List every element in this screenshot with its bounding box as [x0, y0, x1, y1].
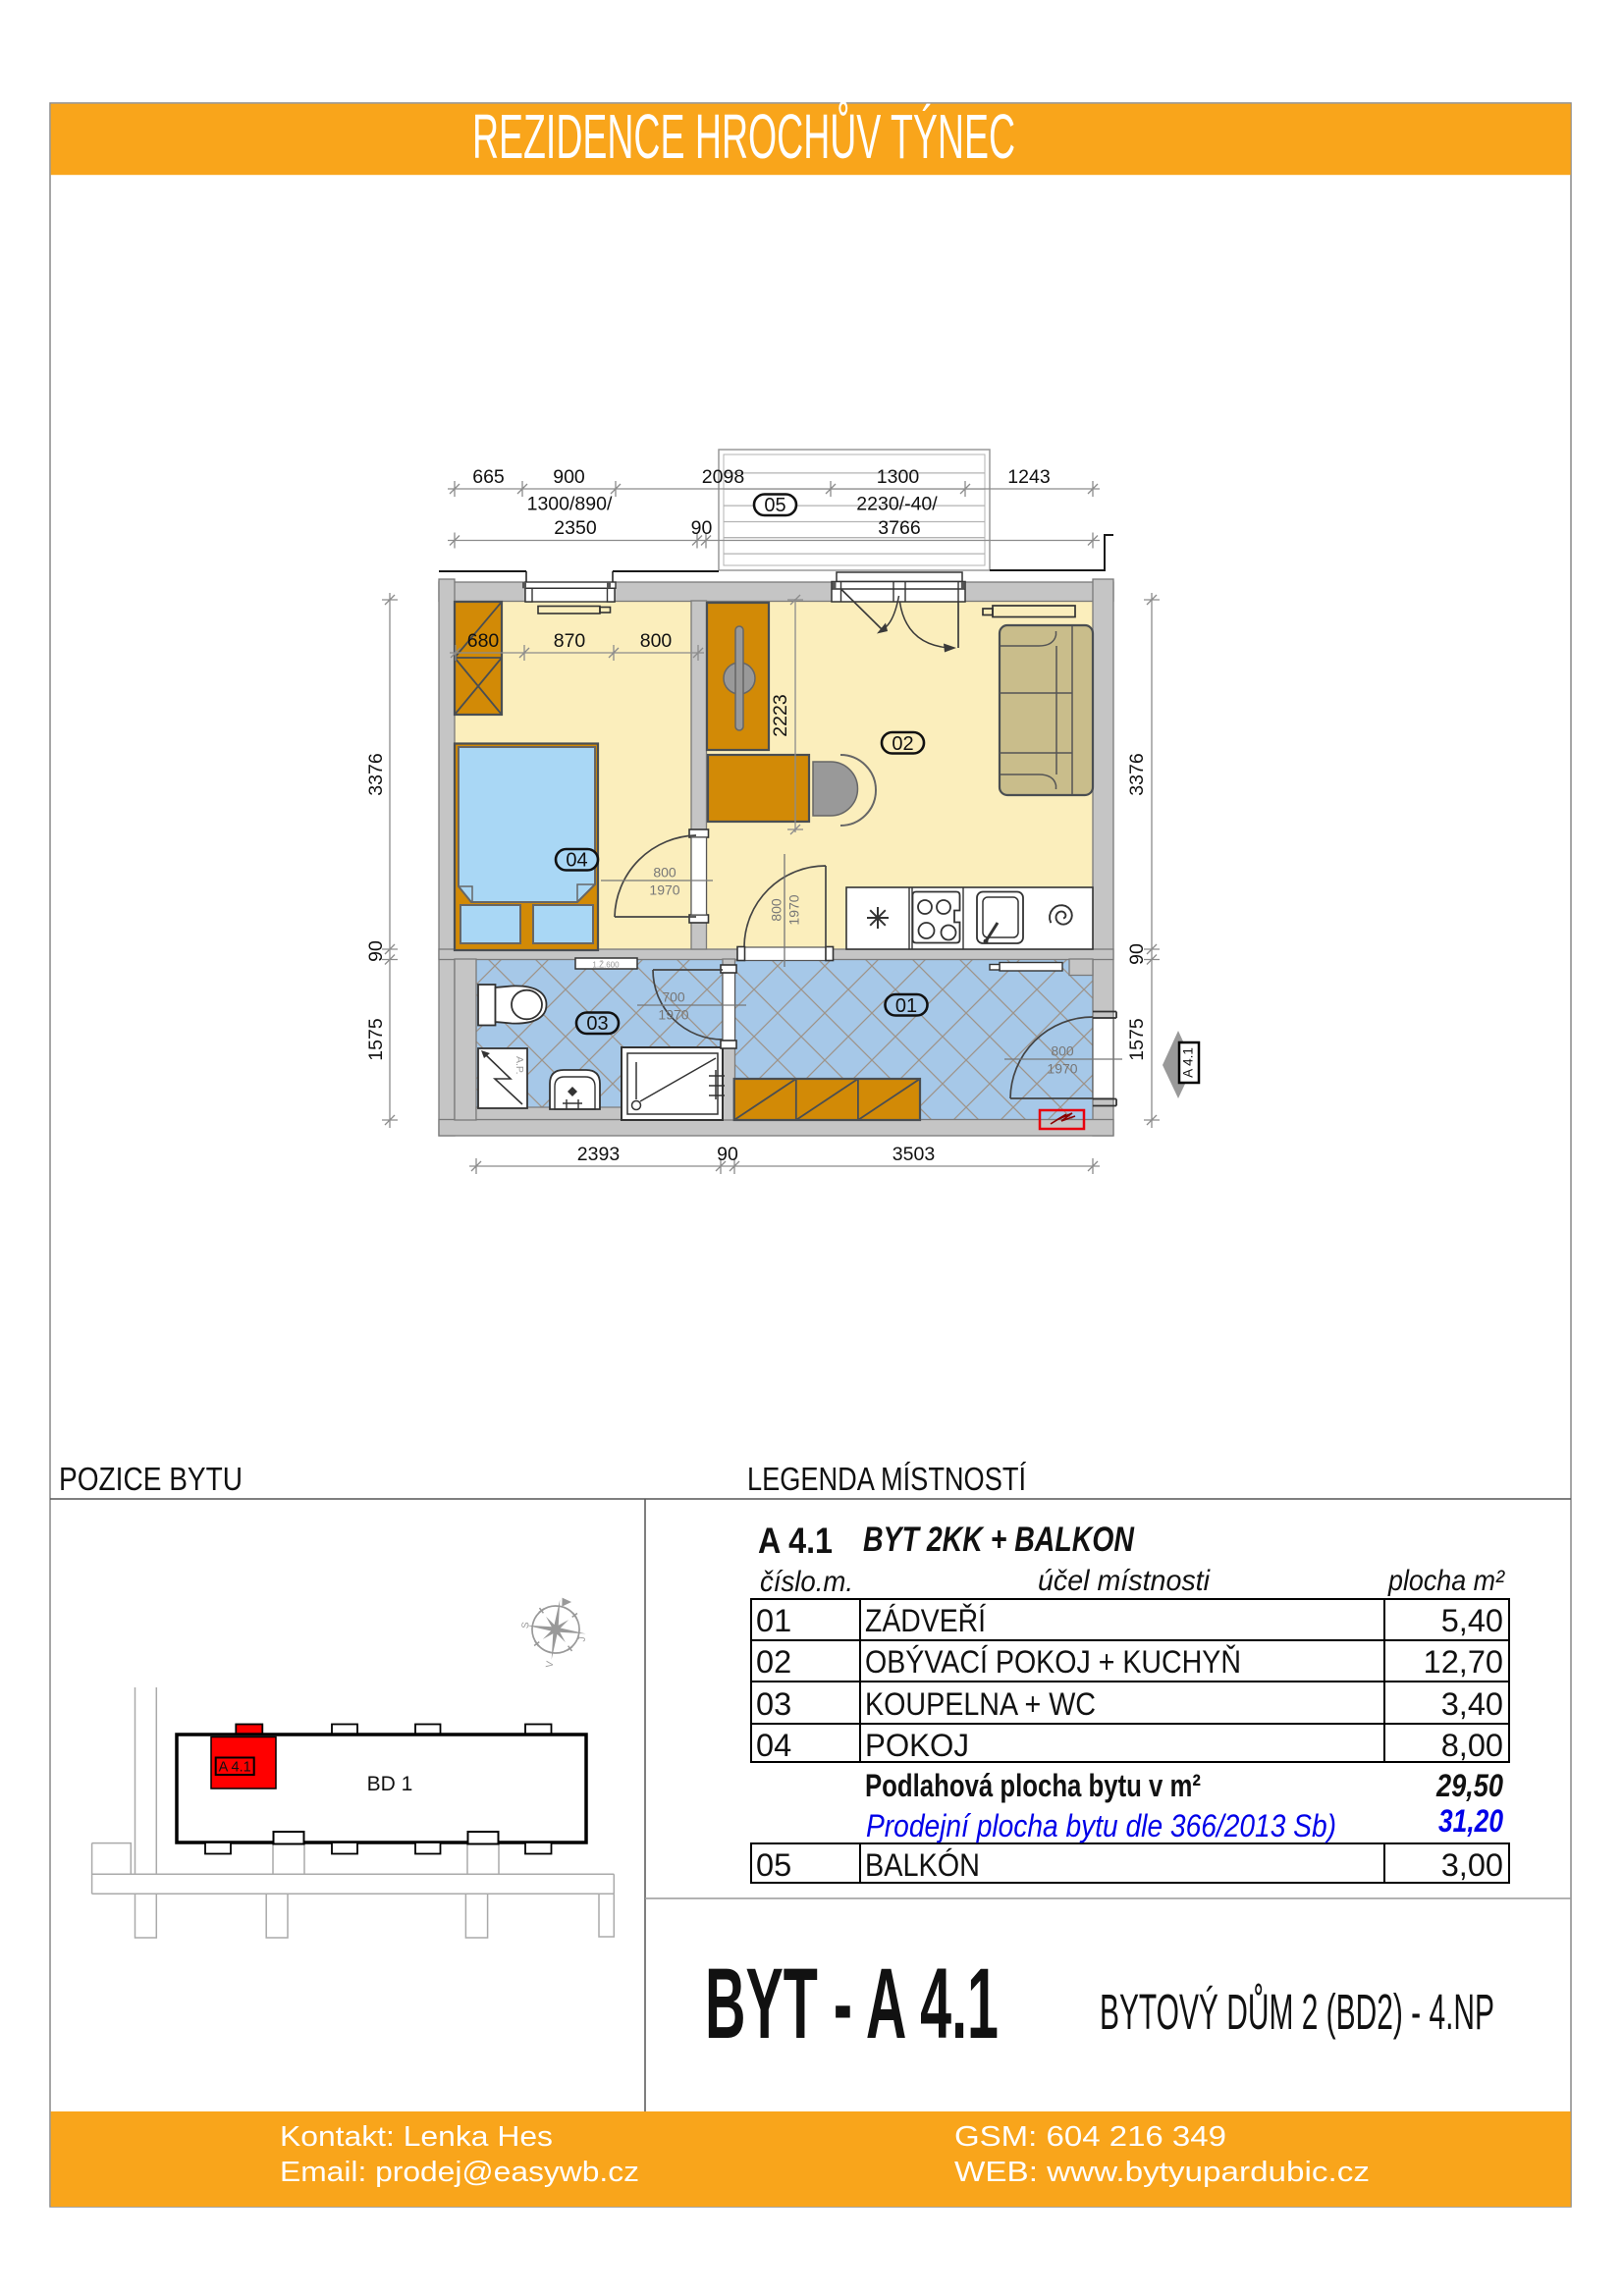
svg-text:90: 90: [717, 1144, 738, 1165]
svg-text:2223: 2223: [770, 694, 791, 736]
svg-text:Prodejní plocha bytu dle 366/2: Prodejní plocha bytu dle 366/2013 Sb): [866, 1808, 1336, 1843]
svg-text:WEB: www.bytyupardubic.cz: WEB: www.bytyupardubic.cz: [954, 2157, 1370, 2188]
svg-text:04: 04: [756, 1728, 791, 1763]
svg-text:680: 680: [467, 630, 500, 652]
svg-text:800: 800: [640, 630, 673, 652]
svg-text:12,70: 12,70: [1424, 1644, 1503, 1680]
svg-text:90: 90: [365, 940, 387, 962]
svg-text:02: 02: [756, 1644, 791, 1680]
svg-text:900: 900: [553, 466, 585, 488]
svg-text:2350: 2350: [554, 517, 597, 539]
svg-text:1300: 1300: [877, 466, 920, 488]
svg-text:03: 03: [756, 1686, 791, 1722]
svg-text:ZÁDVEŘÍ: ZÁDVEŘÍ: [865, 1602, 986, 1638]
svg-text:01: 01: [756, 1603, 791, 1638]
svg-text:29,50: 29,50: [1435, 1768, 1503, 1803]
svg-text:700: 700: [662, 989, 685, 1005]
svg-text:číslo.m.: číslo.m.: [760, 1566, 853, 1598]
svg-text:1970: 1970: [786, 894, 802, 925]
svg-text:A 4.1: A 4.1: [758, 1521, 833, 1561]
svg-text:BYTOVÝ DŮM 2 (BD2) - 4.NP: BYTOVÝ DŮM 2 (BD2) - 4.NP: [1100, 1983, 1494, 2040]
svg-text:A.P.: A.P.: [514, 1056, 525, 1075]
svg-text:3,00: 3,00: [1441, 1847, 1503, 1883]
svg-text:1.Ž.600: 1.Ž.600: [592, 961, 620, 970]
svg-text:POZICE BYTU: POZICE BYTU: [59, 1461, 243, 1497]
svg-text:A 4.1: A 4.1: [219, 1760, 251, 1776]
svg-text:8,00: 8,00: [1441, 1728, 1503, 1763]
svg-text:Email: prodej@easywb.cz: Email: prodej@easywb.cz: [280, 2157, 639, 2188]
svg-text:BYT - A 4.1: BYT - A 4.1: [705, 1948, 999, 2059]
svg-text:S: S: [520, 1621, 532, 1629]
svg-text:04: 04: [566, 850, 587, 872]
svg-text:800: 800: [769, 898, 784, 922]
svg-text:02: 02: [892, 733, 913, 755]
svg-text:1575: 1575: [1126, 1018, 1148, 1061]
svg-text:3376: 3376: [365, 753, 387, 795]
svg-text:OBÝVACÍ POKOJ + KUCHYŇ: OBÝVACÍ POKOJ + KUCHYŇ: [865, 1643, 1241, 1680]
svg-text:2393: 2393: [577, 1144, 620, 1165]
svg-text:90: 90: [1126, 943, 1148, 965]
svg-text:800: 800: [653, 865, 676, 881]
svg-text:870: 870: [554, 630, 586, 652]
svg-text:Podlahová plocha bytu v m²: Podlahová plocha bytu v m²: [865, 1768, 1201, 1803]
svg-text:A 4.1: A 4.1: [1181, 1047, 1196, 1078]
svg-text:V: V: [545, 1660, 557, 1668]
svg-text:BALKÓN: BALKÓN: [865, 1846, 980, 1883]
svg-text:3,40: 3,40: [1441, 1686, 1503, 1722]
svg-text:účel místnosti: účel místnosti: [1038, 1565, 1211, 1597]
svg-text:LEGENDA MÍSTNOSTÍ: LEGENDA MÍSTNOSTÍ: [747, 1461, 1027, 1497]
svg-text:665: 665: [472, 466, 505, 488]
svg-text:3766: 3766: [878, 517, 920, 539]
svg-text:1970: 1970: [1047, 1061, 1077, 1077]
svg-text:GSM: 604 216 349: GSM: 604 216 349: [954, 2121, 1226, 2153]
svg-text:3376: 3376: [1126, 753, 1148, 795]
svg-text:REZIDENCE HROCHŮV TÝNEC: REZIDENCE HROCHŮV TÝNEC: [472, 100, 1015, 172]
svg-text:31,20: 31,20: [1438, 1803, 1503, 1839]
svg-text:5,40: 5,40: [1441, 1603, 1503, 1638]
svg-text:01: 01: [895, 995, 917, 1017]
svg-text:90: 90: [691, 517, 713, 539]
svg-text:03: 03: [586, 1013, 608, 1035]
svg-text:2098: 2098: [702, 466, 744, 488]
svg-text:2230/-40/: 2230/-40/: [856, 494, 938, 515]
svg-text:1300/890/: 1300/890/: [527, 494, 613, 515]
svg-text:J: J: [577, 1636, 589, 1642]
svg-text:POKOJ: POKOJ: [865, 1728, 969, 1763]
svg-text:1970: 1970: [658, 1007, 688, 1023]
svg-text:BYT 2KK + BALKON: BYT 2KK + BALKON: [863, 1521, 1135, 1559]
svg-text:BD 1: BD 1: [367, 1773, 413, 1795]
svg-text:05: 05: [756, 1847, 791, 1883]
svg-text:3503: 3503: [893, 1144, 935, 1165]
svg-text:1575: 1575: [365, 1018, 387, 1061]
svg-text:plocha m²: plocha m²: [1387, 1565, 1505, 1597]
svg-text:Kontakt: Lenka Hes: Kontakt: Lenka Hes: [280, 2121, 553, 2153]
svg-text:05: 05: [764, 495, 785, 516]
svg-text:KOUPELNA + WC: KOUPELNA + WC: [865, 1686, 1096, 1722]
svg-text:1970: 1970: [649, 882, 679, 898]
svg-text:800: 800: [1051, 1043, 1074, 1059]
svg-text:1243: 1243: [1007, 466, 1050, 488]
